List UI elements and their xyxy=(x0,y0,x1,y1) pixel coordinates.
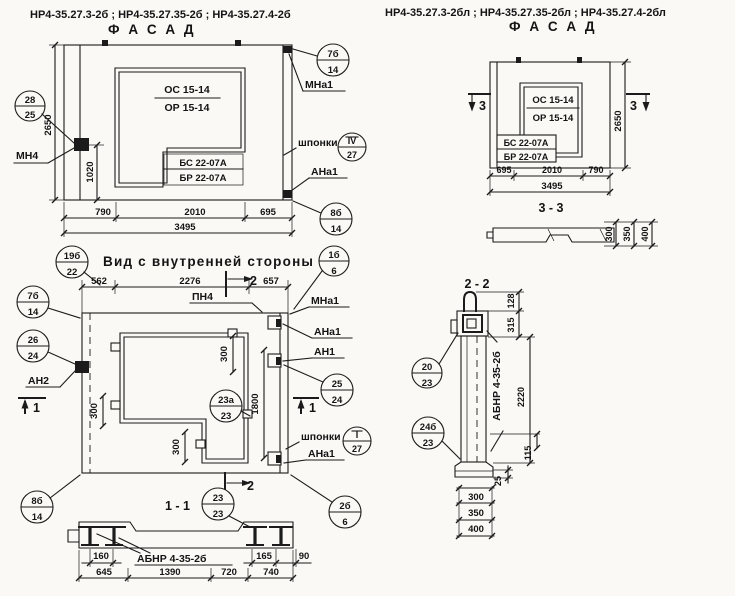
svg-text:350: 350 xyxy=(622,226,632,241)
panel-marks-2: БС 22-07А БР 22-07А xyxy=(164,154,243,185)
svg-text:160: 160 xyxy=(93,551,109,562)
svg-text:27: 27 xyxy=(347,150,357,160)
svg-text:1020: 1020 xyxy=(85,161,96,182)
panel-drawing: НР4-35.27.3-2б ; НР4-35.27.35-2б ; НР4-3… xyxy=(0,0,735,596)
callout-7b-14-b: 7б 14 xyxy=(17,286,80,318)
inner-view-title: Вид с внутренней стороны xyxy=(103,254,314,269)
svg-text:АНа1: АНа1 xyxy=(311,166,338,178)
svg-text:720: 720 xyxy=(221,567,237,578)
svg-text:2276: 2276 xyxy=(179,276,200,287)
svg-text:8б: 8б xyxy=(330,208,341,219)
svg-text:695: 695 xyxy=(260,207,277,218)
dim-1020: 1020 xyxy=(85,142,104,203)
dims-33: 300 350 400 xyxy=(604,219,658,249)
dim-300-top: 300 xyxy=(219,333,236,375)
label-ana1-top: АНа1 xyxy=(283,324,352,338)
dim-ladder: 300 350 400 xyxy=(456,485,495,539)
section-1-marker-left: 1 xyxy=(19,398,45,415)
callout-24b-23: 24б 23 xyxy=(412,417,460,459)
dim-2650-right: 2650 xyxy=(610,59,631,171)
svg-text:645: 645 xyxy=(96,567,113,578)
section-1-marker-right: 1 xyxy=(294,398,318,415)
edge-tab xyxy=(283,46,292,53)
label-abnr: АБНР 4-35-2б xyxy=(97,534,232,565)
callout-26-24: 26 24 xyxy=(17,330,75,364)
svg-text:300: 300 xyxy=(171,439,182,455)
svg-text:25: 25 xyxy=(332,379,343,390)
lifting-loop xyxy=(464,292,476,311)
svg-text:шпонки: шпонки xyxy=(301,431,341,443)
svg-text:22: 22 xyxy=(67,267,78,278)
svg-text:657: 657 xyxy=(263,276,279,287)
label-an1: АН1 xyxy=(283,346,344,361)
svg-text:БС 22-07А: БС 22-07А xyxy=(504,138,549,148)
dim-1800: 1800 xyxy=(250,347,267,461)
section-3-3-title: 3 - 3 xyxy=(538,201,563,215)
dim-2650: 2650 xyxy=(43,42,64,203)
svg-text:МН4: МН4 xyxy=(16,150,38,162)
svg-text:1390: 1390 xyxy=(159,567,180,578)
svg-text:14: 14 xyxy=(331,224,342,235)
panel-body xyxy=(461,336,486,462)
svg-text:1: 1 xyxy=(309,401,316,415)
svg-text:МНа1: МНа1 xyxy=(311,295,339,307)
svg-text:7б: 7б xyxy=(27,291,38,302)
svg-text:25: 25 xyxy=(25,110,36,121)
lifting-loop xyxy=(235,40,241,46)
dim-25: 25 xyxy=(493,466,513,486)
section-3-marker-right: 3 xyxy=(627,94,650,113)
svg-text:2650: 2650 xyxy=(43,114,54,135)
lifting-loop xyxy=(516,57,521,63)
svg-text:2220: 2220 xyxy=(516,387,526,407)
svg-text:14: 14 xyxy=(32,512,43,523)
label-ana1-bottom: АНа1 xyxy=(284,448,344,463)
svg-text:БР 22-07А: БР 22-07А xyxy=(504,152,549,162)
mark-br: БР 22-07А xyxy=(180,173,227,184)
left-facade-title: Ф А С А Д xyxy=(108,22,196,37)
callout-25-24: 25 24 xyxy=(284,365,353,406)
callout-7b-14: 7б 14 xyxy=(293,44,349,76)
svg-text:128: 128 xyxy=(506,293,516,308)
svg-text:АБНР 4-35-2б: АБНР 4-35-2б xyxy=(137,553,207,565)
svg-text:2: 2 xyxy=(247,479,254,493)
frame-tabs xyxy=(111,329,252,448)
svg-text:ОС 15-14: ОС 15-14 xyxy=(532,95,574,106)
svg-text:24: 24 xyxy=(332,395,343,406)
svg-text:350: 350 xyxy=(468,508,484,519)
svg-text:300: 300 xyxy=(219,346,230,362)
facade-left-view: ОС 15-14 ОР 15-14 БС 22-07А БР 22-07А 26… xyxy=(14,40,366,237)
svg-text:24б: 24б xyxy=(420,422,437,433)
svg-text:25: 25 xyxy=(493,476,503,486)
label-mna1-b: МНа1 xyxy=(290,295,349,314)
callout-8b-14: 8б 14 xyxy=(293,201,352,235)
svg-text:23: 23 xyxy=(422,378,433,389)
svg-text:8б: 8б xyxy=(31,496,42,507)
callout-i-27: I 27 xyxy=(343,427,371,455)
svg-text:23: 23 xyxy=(213,509,224,520)
anchor-mn4 xyxy=(74,138,89,151)
section-2-2: 2 - 2 АБНР 4-35-2б 128 315 2220 xyxy=(412,277,540,539)
svg-text:АБНР 4-35-2б: АБНР 4-35-2б xyxy=(491,351,503,421)
svg-text:790: 790 xyxy=(95,207,111,218)
svg-text:20: 20 xyxy=(422,362,433,373)
svg-text:АН1: АН1 xyxy=(314,346,335,358)
svg-text:3: 3 xyxy=(479,99,486,113)
dims-top: 562 2276 657 xyxy=(79,276,291,313)
section-2-marker-top: 2 xyxy=(226,272,257,296)
callout-iv-27: IV 27 xyxy=(338,133,366,161)
label-mn4: МН4 xyxy=(14,148,74,163)
svg-text:90: 90 xyxy=(299,551,310,562)
svg-text:ОР 15-14: ОР 15-14 xyxy=(533,113,574,124)
callout-8b-14-b: 8б 14 xyxy=(21,475,80,523)
section-3-marker-left: 3 xyxy=(469,94,491,113)
svg-text:АН2: АН2 xyxy=(28,375,49,387)
svg-text:АНа1: АНа1 xyxy=(314,326,341,338)
mark-os: ОС 15-14 xyxy=(164,84,210,96)
facade-right-view: ОС 15-14 ОР 15-14 БС 22-07А БР 22-07А 3 … xyxy=(469,57,650,215)
svg-text:300: 300 xyxy=(468,492,484,503)
label-abnr-vertical: АБНР 4-35-2б xyxy=(487,331,503,451)
mark-bs: БС 22-07А xyxy=(179,158,227,169)
panel-marks-2: БС 22-07А БР 22-07А xyxy=(497,135,556,162)
header: НР4-35.27.3-2б ; НР4-35.27.35-2б ; НР4-3… xyxy=(30,7,666,37)
svg-text:315: 315 xyxy=(506,317,516,332)
section-3-3: 300 350 400 xyxy=(487,219,658,249)
anchor-an2 xyxy=(75,361,89,373)
panel-marks: ОС 15-14 ОР 15-14 xyxy=(527,95,579,124)
inner-side-view: 19б 22 Вид с внутренней стороны 562 2276… xyxy=(17,246,371,528)
svg-text:2: 2 xyxy=(250,274,257,288)
lifting-loop xyxy=(577,57,582,63)
svg-text:МНа1: МНа1 xyxy=(305,79,333,91)
section-2-2-title: 2 - 2 xyxy=(464,277,489,291)
svg-text:23: 23 xyxy=(423,438,434,449)
left-codes: НР4-35.27.3-2б ; НР4-35.27.35-2б ; НР4-3… xyxy=(30,9,291,21)
svg-text:400: 400 xyxy=(640,226,650,241)
svg-text:24: 24 xyxy=(28,351,39,362)
svg-text:790: 790 xyxy=(588,165,603,175)
dim-300-left: 300 xyxy=(89,393,106,429)
mark-or: ОР 15-14 xyxy=(165,102,210,114)
svg-text:23: 23 xyxy=(213,493,224,504)
svg-text:6: 6 xyxy=(342,517,347,528)
svg-text:562: 562 xyxy=(91,276,107,287)
dims-bottom: 695 2010 790 3495 xyxy=(487,165,613,196)
svg-text:14: 14 xyxy=(328,65,339,76)
svg-text:шпонки: шпонки xyxy=(298,137,338,149)
lifting-loop xyxy=(102,40,108,46)
ribs xyxy=(79,527,292,545)
section-1-1-title: 1 - 1 xyxy=(165,499,190,513)
svg-text:27: 27 xyxy=(352,444,362,454)
dims-bottom: 790 2010 695 3495 xyxy=(61,202,295,237)
dim-300-bottom: 300 xyxy=(171,429,188,465)
svg-text:2010: 2010 xyxy=(542,165,562,175)
svg-text:165: 165 xyxy=(256,551,273,562)
svg-text:3: 3 xyxy=(630,99,637,113)
edge-tabs-right xyxy=(268,316,281,465)
svg-text:1800: 1800 xyxy=(250,393,261,414)
callout-2b-6: 2б 6 xyxy=(291,475,361,528)
dim-column: 128 315 2220 xyxy=(476,289,535,466)
svg-text:26: 26 xyxy=(28,335,39,346)
svg-text:740: 740 xyxy=(263,567,279,578)
svg-text:7б: 7б xyxy=(327,49,338,60)
svg-text:300: 300 xyxy=(604,226,614,241)
svg-text:6: 6 xyxy=(331,266,336,277)
svg-text:115: 115 xyxy=(523,446,533,461)
right-codes: НР4-35.27.3-2бл ; НР4-35.27.35-2бл ; НР4… xyxy=(385,7,666,19)
svg-text:АНа1: АНа1 xyxy=(308,448,335,460)
callout-23-23: 23 23 xyxy=(202,488,250,527)
svg-text:1б: 1б xyxy=(328,250,339,261)
svg-text:1: 1 xyxy=(33,401,40,415)
svg-text:400: 400 xyxy=(468,524,484,535)
callout-20-23: 20 23 xyxy=(412,333,458,389)
label-shponki-b: шпонки xyxy=(286,431,341,449)
section-1-1: 1 - 1 23 23 АБНР 4-35-2б 160 165 xyxy=(68,488,311,582)
svg-text:2650: 2650 xyxy=(613,110,624,131)
svg-text:695: 695 xyxy=(496,165,511,175)
svg-text:19б: 19б xyxy=(64,251,81,262)
svg-text:3495: 3495 xyxy=(541,181,563,192)
drawing-sheet: НР4-35.27.3-2б ; НР4-35.27.35-2б ; НР4-3… xyxy=(0,0,735,596)
svg-text:23а: 23а xyxy=(218,395,235,406)
panel-marks: ОС 15-14 ОР 15-14 xyxy=(155,84,220,114)
section-2-marker-bottom: 2 xyxy=(225,473,254,493)
svg-text:14: 14 xyxy=(28,307,39,318)
svg-text:2010: 2010 xyxy=(184,207,205,218)
svg-text:2б: 2б xyxy=(339,501,350,512)
right-facade-title: Ф А С А Д xyxy=(509,19,597,34)
label-ana1: АНа1 xyxy=(291,166,347,191)
svg-text:ПН4: ПН4 xyxy=(192,291,213,303)
svg-text:28: 28 xyxy=(25,95,36,106)
svg-text:23: 23 xyxy=(221,411,232,422)
svg-text:300: 300 xyxy=(89,403,100,419)
panel-foot xyxy=(455,462,493,477)
svg-text:3495: 3495 xyxy=(174,222,196,233)
label-an2: АН2 xyxy=(26,371,75,387)
dim-115: 115 xyxy=(490,431,540,460)
